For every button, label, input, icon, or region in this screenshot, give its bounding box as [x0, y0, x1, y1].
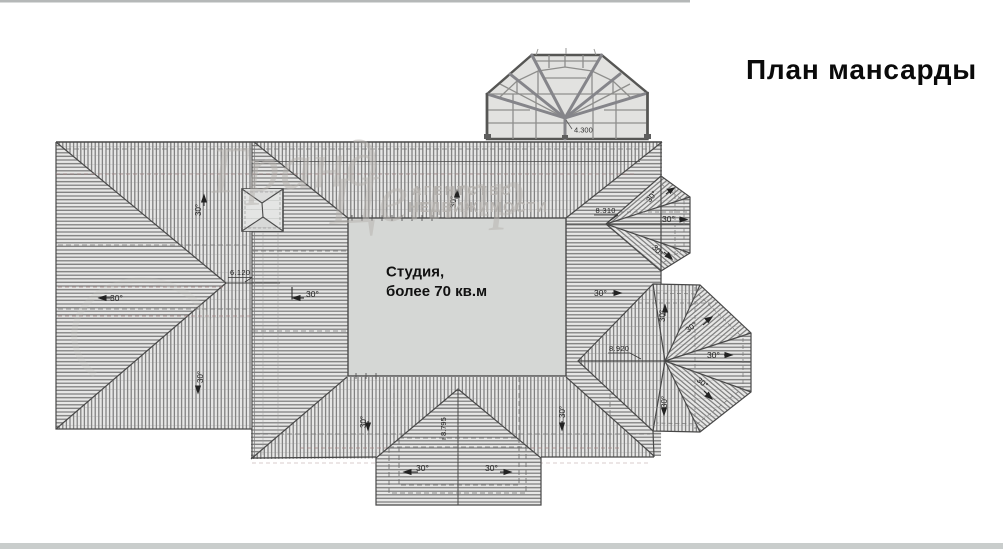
svg-text:4.300: 4.300: [574, 126, 593, 135]
svg-text:8.920: 8.920: [609, 344, 629, 353]
svg-text:8.310: 8.310: [596, 206, 616, 215]
svg-text:30°: 30°: [662, 214, 675, 224]
svg-text:30°: 30°: [485, 463, 498, 473]
svg-text:30°: 30°: [306, 289, 319, 299]
svg-text:НЕДВИЖИМОСТИ: НЕДВИЖИМОСТИ: [408, 200, 548, 216]
svg-text:План мансарды: План мансарды: [746, 54, 977, 85]
svg-text:АГЕНТСТВО: АГЕНТСТВО: [412, 183, 513, 198]
svg-text:30°: 30°: [558, 406, 567, 418]
svg-text:30°: 30°: [196, 371, 205, 383]
svg-text:30°: 30°: [660, 396, 669, 408]
svg-text:6.120: 6.120: [230, 268, 250, 277]
svg-text:8.795: 8.795: [439, 417, 448, 436]
svg-text:30°: 30°: [194, 204, 203, 216]
svg-text:30°: 30°: [707, 350, 720, 360]
svg-text:30°: 30°: [594, 288, 607, 298]
svg-text:Студия,: Студия,: [386, 264, 444, 281]
svg-text:более 70 кв.м: более 70 кв.м: [386, 283, 487, 300]
